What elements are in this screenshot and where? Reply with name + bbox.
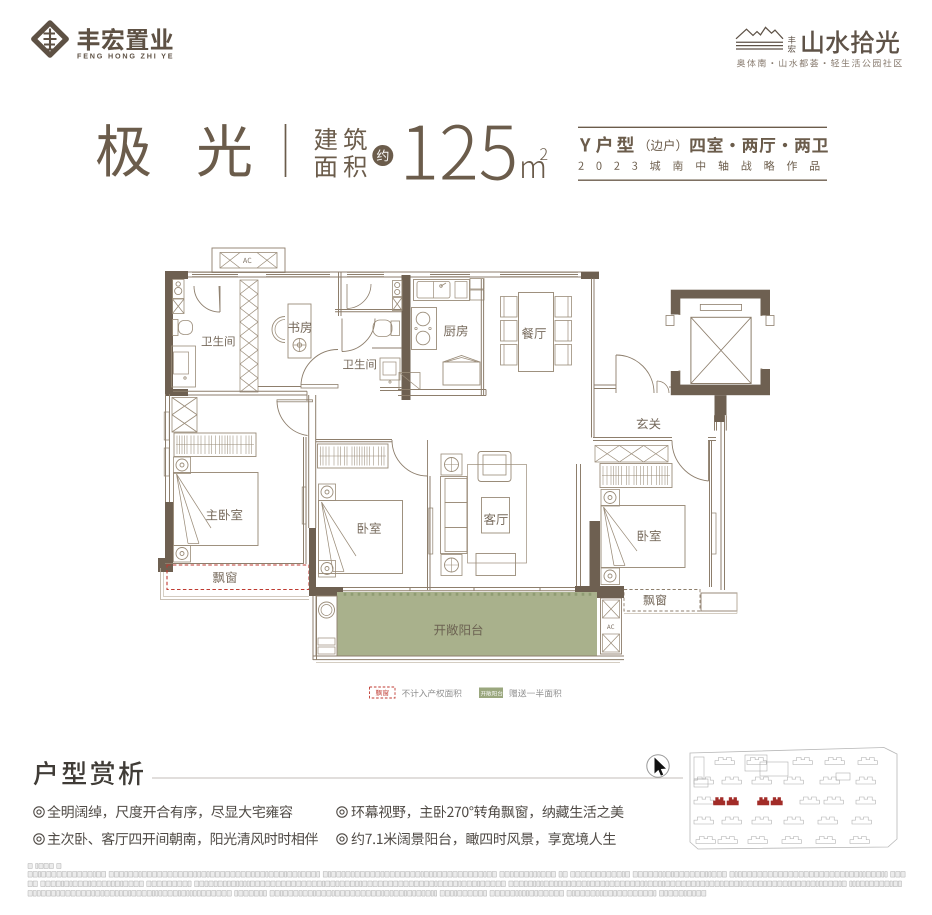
- svg-text:FENG HONG ZHI YE: FENG HONG ZHI YE: [77, 52, 174, 61]
